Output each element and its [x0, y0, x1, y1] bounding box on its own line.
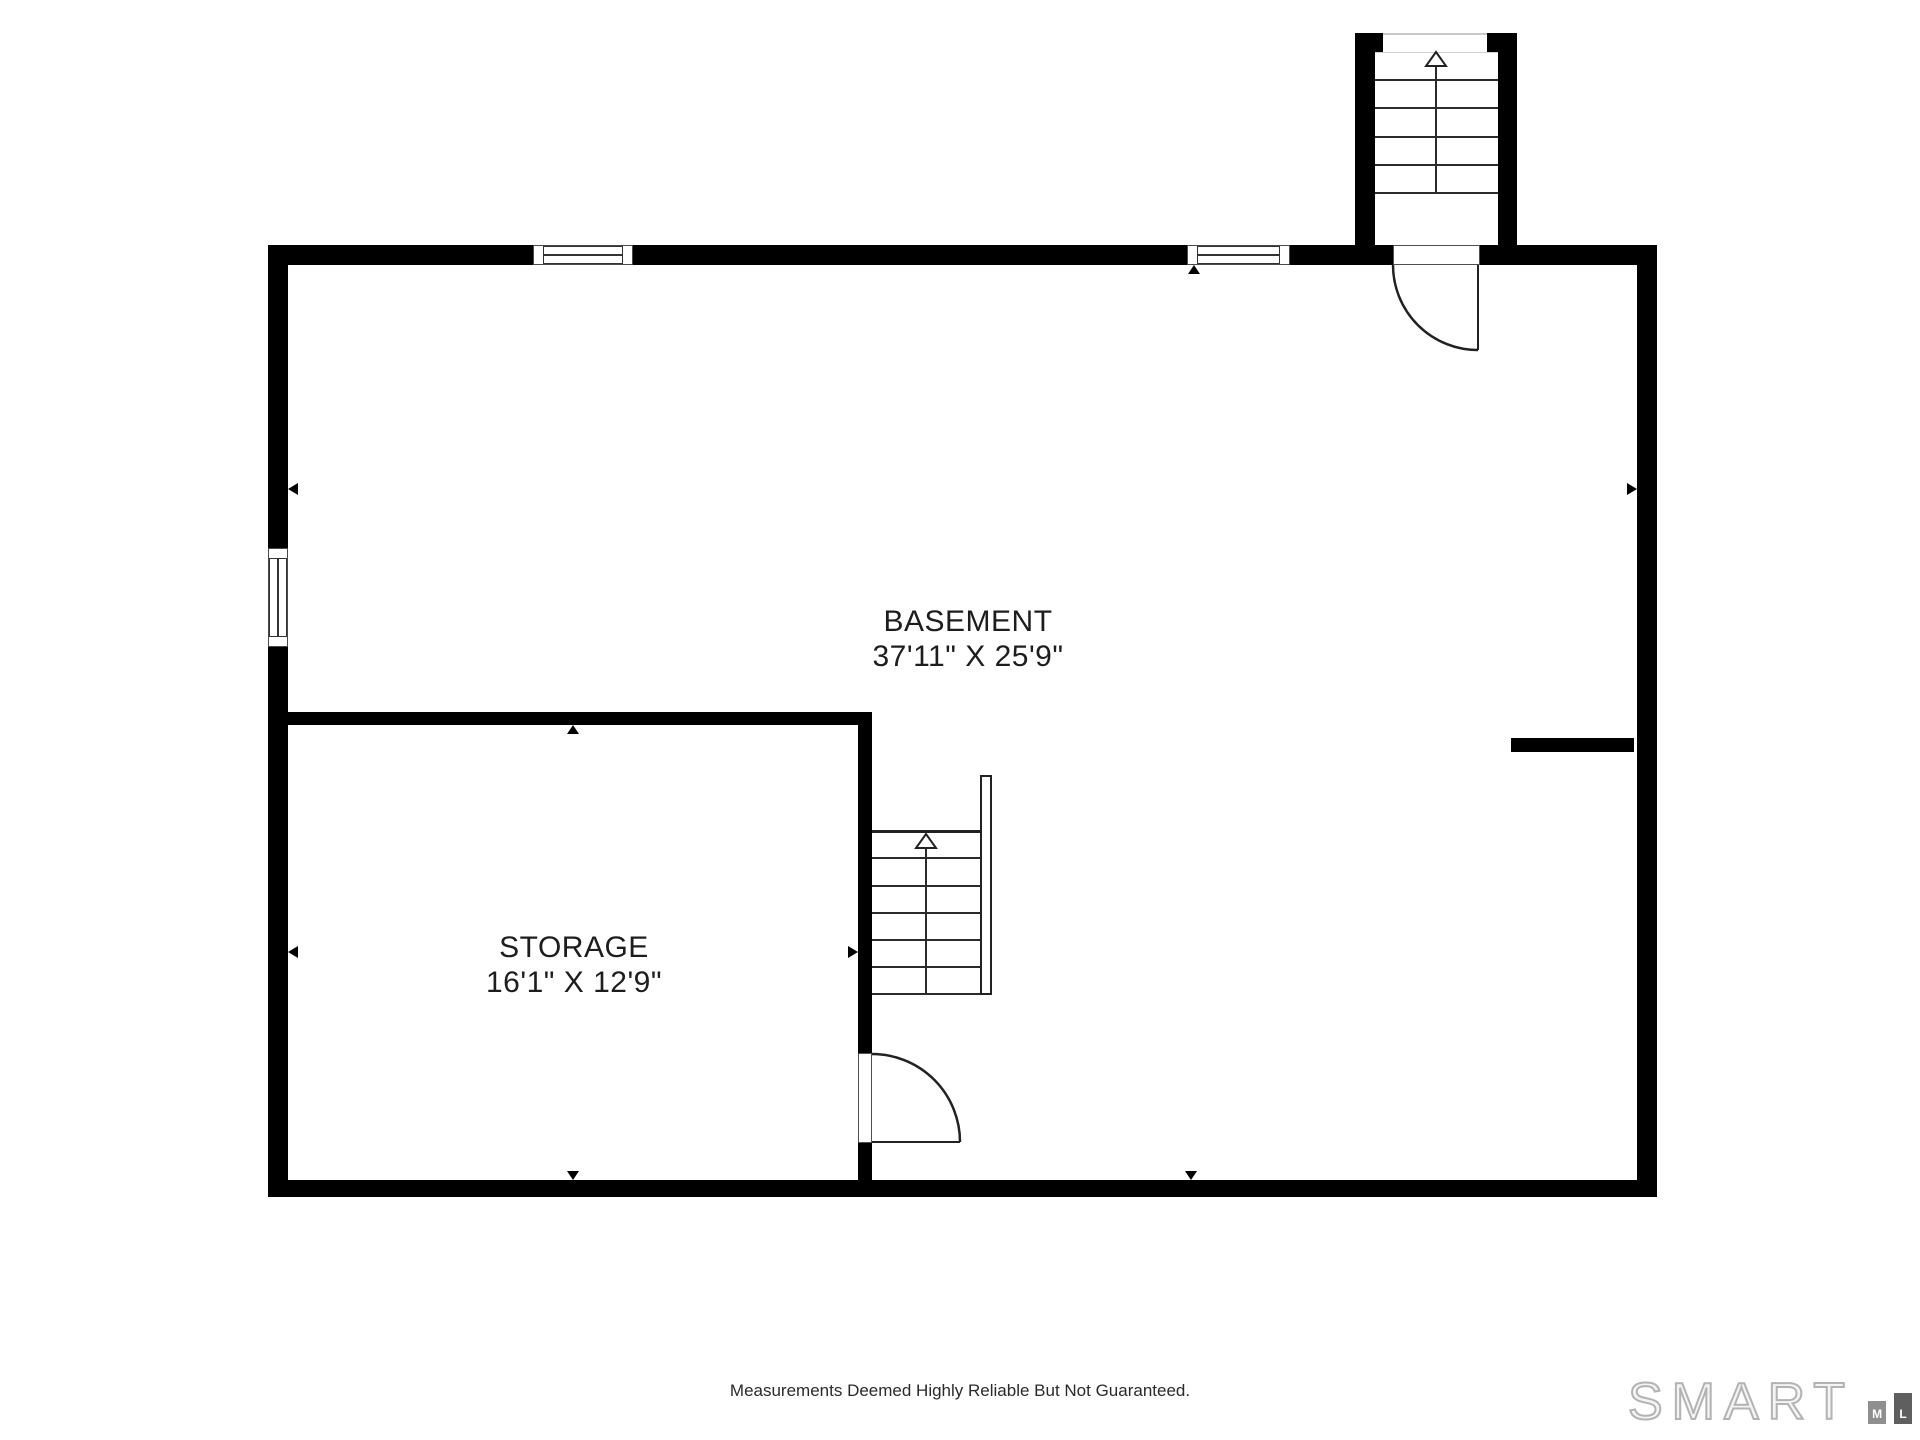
- room-label-basement: BASEMENT 37'11" X 25'9": [718, 604, 1218, 674]
- stair-center-line: [925, 848, 927, 995]
- room-name: BASEMENT: [718, 604, 1218, 639]
- room-name: STORAGE: [324, 930, 824, 965]
- window: [533, 245, 633, 265]
- logo-bars-icon: M L S: [1860, 1383, 1920, 1424]
- logo-brand-text: SMART: [1628, 1378, 1854, 1426]
- wall-marker-icon: [567, 725, 579, 734]
- storage-right-wall-segment: [858, 712, 872, 1053]
- room-label-storage: STORAGE 16'1" X 12'9": [324, 930, 824, 1000]
- storage-right-wall-segment: [858, 1143, 872, 1180]
- wall-left-segment: [268, 245, 288, 548]
- wall-top-segment: [633, 245, 1187, 265]
- wall-marker-icon: [1185, 1171, 1197, 1180]
- logo-bar-l: L: [1894, 1393, 1912, 1424]
- window-mid-line: [543, 254, 623, 256]
- smartmls-logo: SMART M L S: [1628, 1378, 1920, 1426]
- room-dimensions: 16'1" X 12'9": [324, 965, 824, 1000]
- wall-marker-icon: [567, 1171, 579, 1180]
- window-mid-line: [277, 558, 279, 637]
- logo-bar-m: M: [1868, 1401, 1886, 1424]
- stair-stringer: [980, 775, 992, 995]
- wall-top-segment: [1480, 245, 1657, 265]
- wall-marker-icon: [1627, 483, 1637, 495]
- wall-marker-icon: [848, 946, 858, 958]
- wall-stub-right: [1511, 738, 1634, 752]
- wall-top-segment: [1290, 245, 1393, 265]
- door-swing: [868, 1050, 964, 1146]
- wall-marker-icon: [1188, 265, 1200, 274]
- wall-left-segment: [268, 647, 288, 1197]
- wall-right: [1637, 245, 1657, 1197]
- window: [268, 548, 288, 647]
- stairwell-right-wall: [1498, 33, 1517, 245]
- stairs-up-arrow-icon: [914, 832, 938, 850]
- door-swing: [1390, 262, 1482, 354]
- wall-top-segment: [268, 245, 533, 265]
- wall-bottom: [268, 1180, 1657, 1197]
- stairs-up-arrow-icon: [1424, 50, 1448, 68]
- window-mid-line: [1197, 254, 1280, 256]
- stairwell-cap-left: [1355, 33, 1383, 52]
- window: [1187, 245, 1290, 265]
- storage-top-wall: [268, 712, 872, 725]
- floor-plan: BASEMENT 37'11" X 25'9" STORAGE 16'1" X …: [0, 0, 1920, 1440]
- stairwell-cap-right: [1487, 33, 1517, 52]
- room-dimensions: 37'11" X 25'9": [718, 639, 1218, 674]
- stairwell-left-wall: [1355, 33, 1375, 245]
- disclaimer-text: Measurements Deemed Highly Reliable But …: [660, 1381, 1260, 1401]
- wall-marker-icon: [288, 946, 298, 958]
- wall-marker-icon: [288, 483, 298, 495]
- stair-center-line: [1435, 64, 1437, 194]
